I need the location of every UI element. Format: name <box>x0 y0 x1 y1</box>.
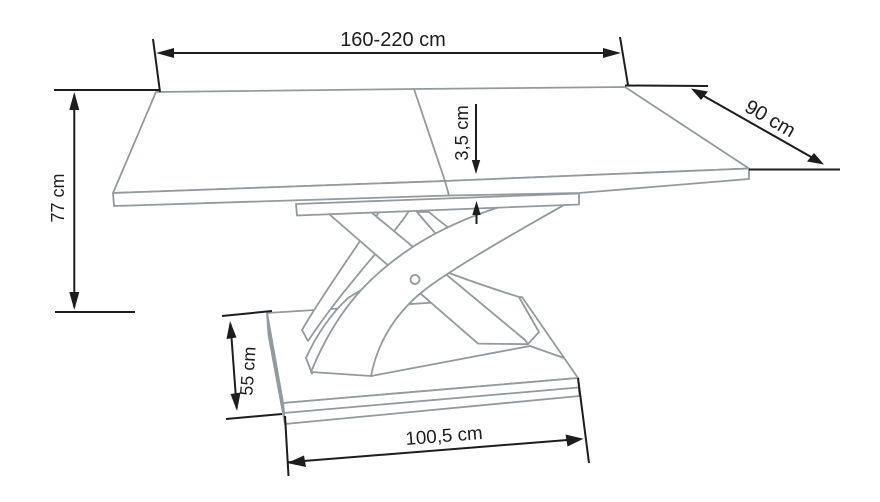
svg-text:77 cm: 77 cm <box>48 173 68 222</box>
svg-text:3,5 cm: 3,5 cm <box>451 105 472 161</box>
svg-text:55 cm: 55 cm <box>236 346 259 396</box>
svg-text:160-220 cm: 160-220 cm <box>340 29 446 51</box>
